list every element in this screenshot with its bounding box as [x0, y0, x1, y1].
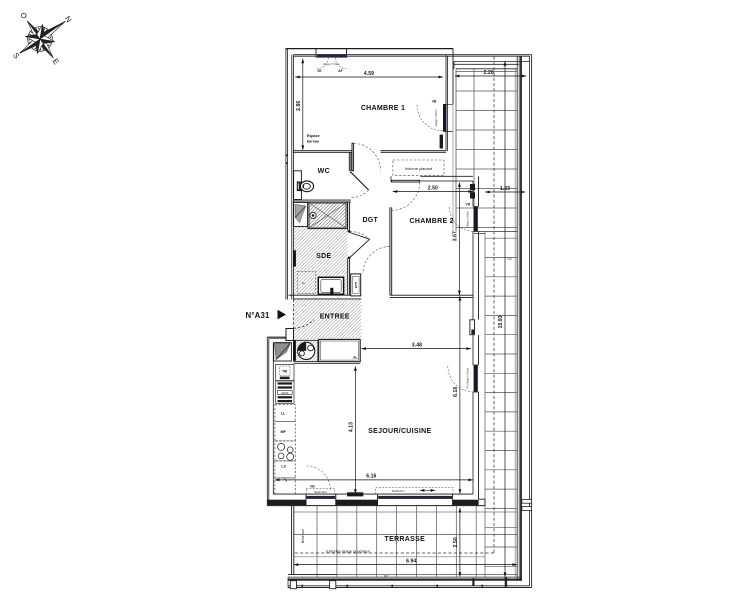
- svg-text:GC: GC: [384, 575, 390, 579]
- svg-text:PL: PL: [353, 356, 357, 360]
- svg-text:3.48: 3.48: [412, 342, 422, 348]
- svg-text:VB: VB: [310, 484, 315, 488]
- svg-text:Allège h 50cm: Allège h 50cm: [466, 210, 470, 228]
- svg-text:2.20: 2.20: [484, 70, 494, 76]
- svg-text:2.50: 2.50: [428, 185, 438, 191]
- svg-text:Allège h 50cm: Allège h 50cm: [323, 62, 341, 66]
- svg-text:6.18: 6.18: [453, 387, 459, 397]
- svg-text:6.94: 6.94: [406, 558, 416, 564]
- svg-text:3.67: 3.67: [453, 231, 459, 241]
- svg-text:4.13: 4.13: [349, 422, 355, 432]
- svg-text:SDE: SDE: [316, 253, 331, 260]
- svg-text:Seuil<2cm: Seuil<2cm: [314, 490, 327, 494]
- svg-text:VK: VK: [317, 69, 322, 73]
- svg-text:DGT: DGT: [362, 217, 378, 224]
- svg-text:Espace: Espace: [307, 134, 320, 138]
- svg-text:VB: VB: [432, 100, 437, 104]
- svg-text:SEJOUR/CUISINE: SEJOUR/CUISINE: [368, 428, 431, 435]
- svg-text:ETB: ETB: [354, 281, 358, 288]
- svg-text:TERRASSE: TERRASSE: [385, 536, 426, 543]
- svg-text:MP: MP: [281, 430, 287, 434]
- svg-text:VR: VR: [466, 202, 471, 206]
- svg-text:Volume placard: Volume placard: [405, 166, 433, 171]
- svg-text:60x60: 60x60: [281, 391, 289, 395]
- svg-text:Seuil<2cm: Seuil<2cm: [392, 489, 405, 493]
- svg-text:WC: WC: [318, 168, 330, 175]
- svg-text:Brise vue: Brise vue: [301, 529, 305, 543]
- svg-text:GC: GC: [507, 257, 513, 261]
- svg-text:6.16: 6.16: [366, 474, 376, 480]
- svg-text:CHAMBRE 2: CHAMBRE 2: [410, 218, 454, 225]
- svg-text:VR Allège h 50cm: VR Allège h 50cm: [465, 367, 469, 389]
- svg-text:LC: LC: [281, 464, 286, 468]
- svg-text:CHAMBRE 1: CHAMBRE 1: [361, 105, 405, 112]
- svg-text:Emprise étage supérieur: Emprise étage supérieur: [326, 549, 370, 554]
- svg-text:LL: LL: [302, 281, 306, 285]
- svg-text:TRI: TRI: [282, 369, 287, 373]
- svg-text:2.50: 2.50: [453, 537, 459, 547]
- svg-text:4.59: 4.59: [364, 71, 374, 77]
- svg-text:15.93: 15.93: [498, 315, 504, 328]
- svg-text:ENTREE: ENTREE: [320, 313, 350, 320]
- svg-text:bureau: bureau: [307, 140, 320, 144]
- svg-text:AF: AF: [338, 69, 342, 73]
- svg-text:Allège h 50cm: Allège h 50cm: [434, 109, 438, 127]
- svg-text:N°A31: N°A31: [246, 311, 271, 320]
- svg-text:2.86: 2.86: [296, 101, 302, 111]
